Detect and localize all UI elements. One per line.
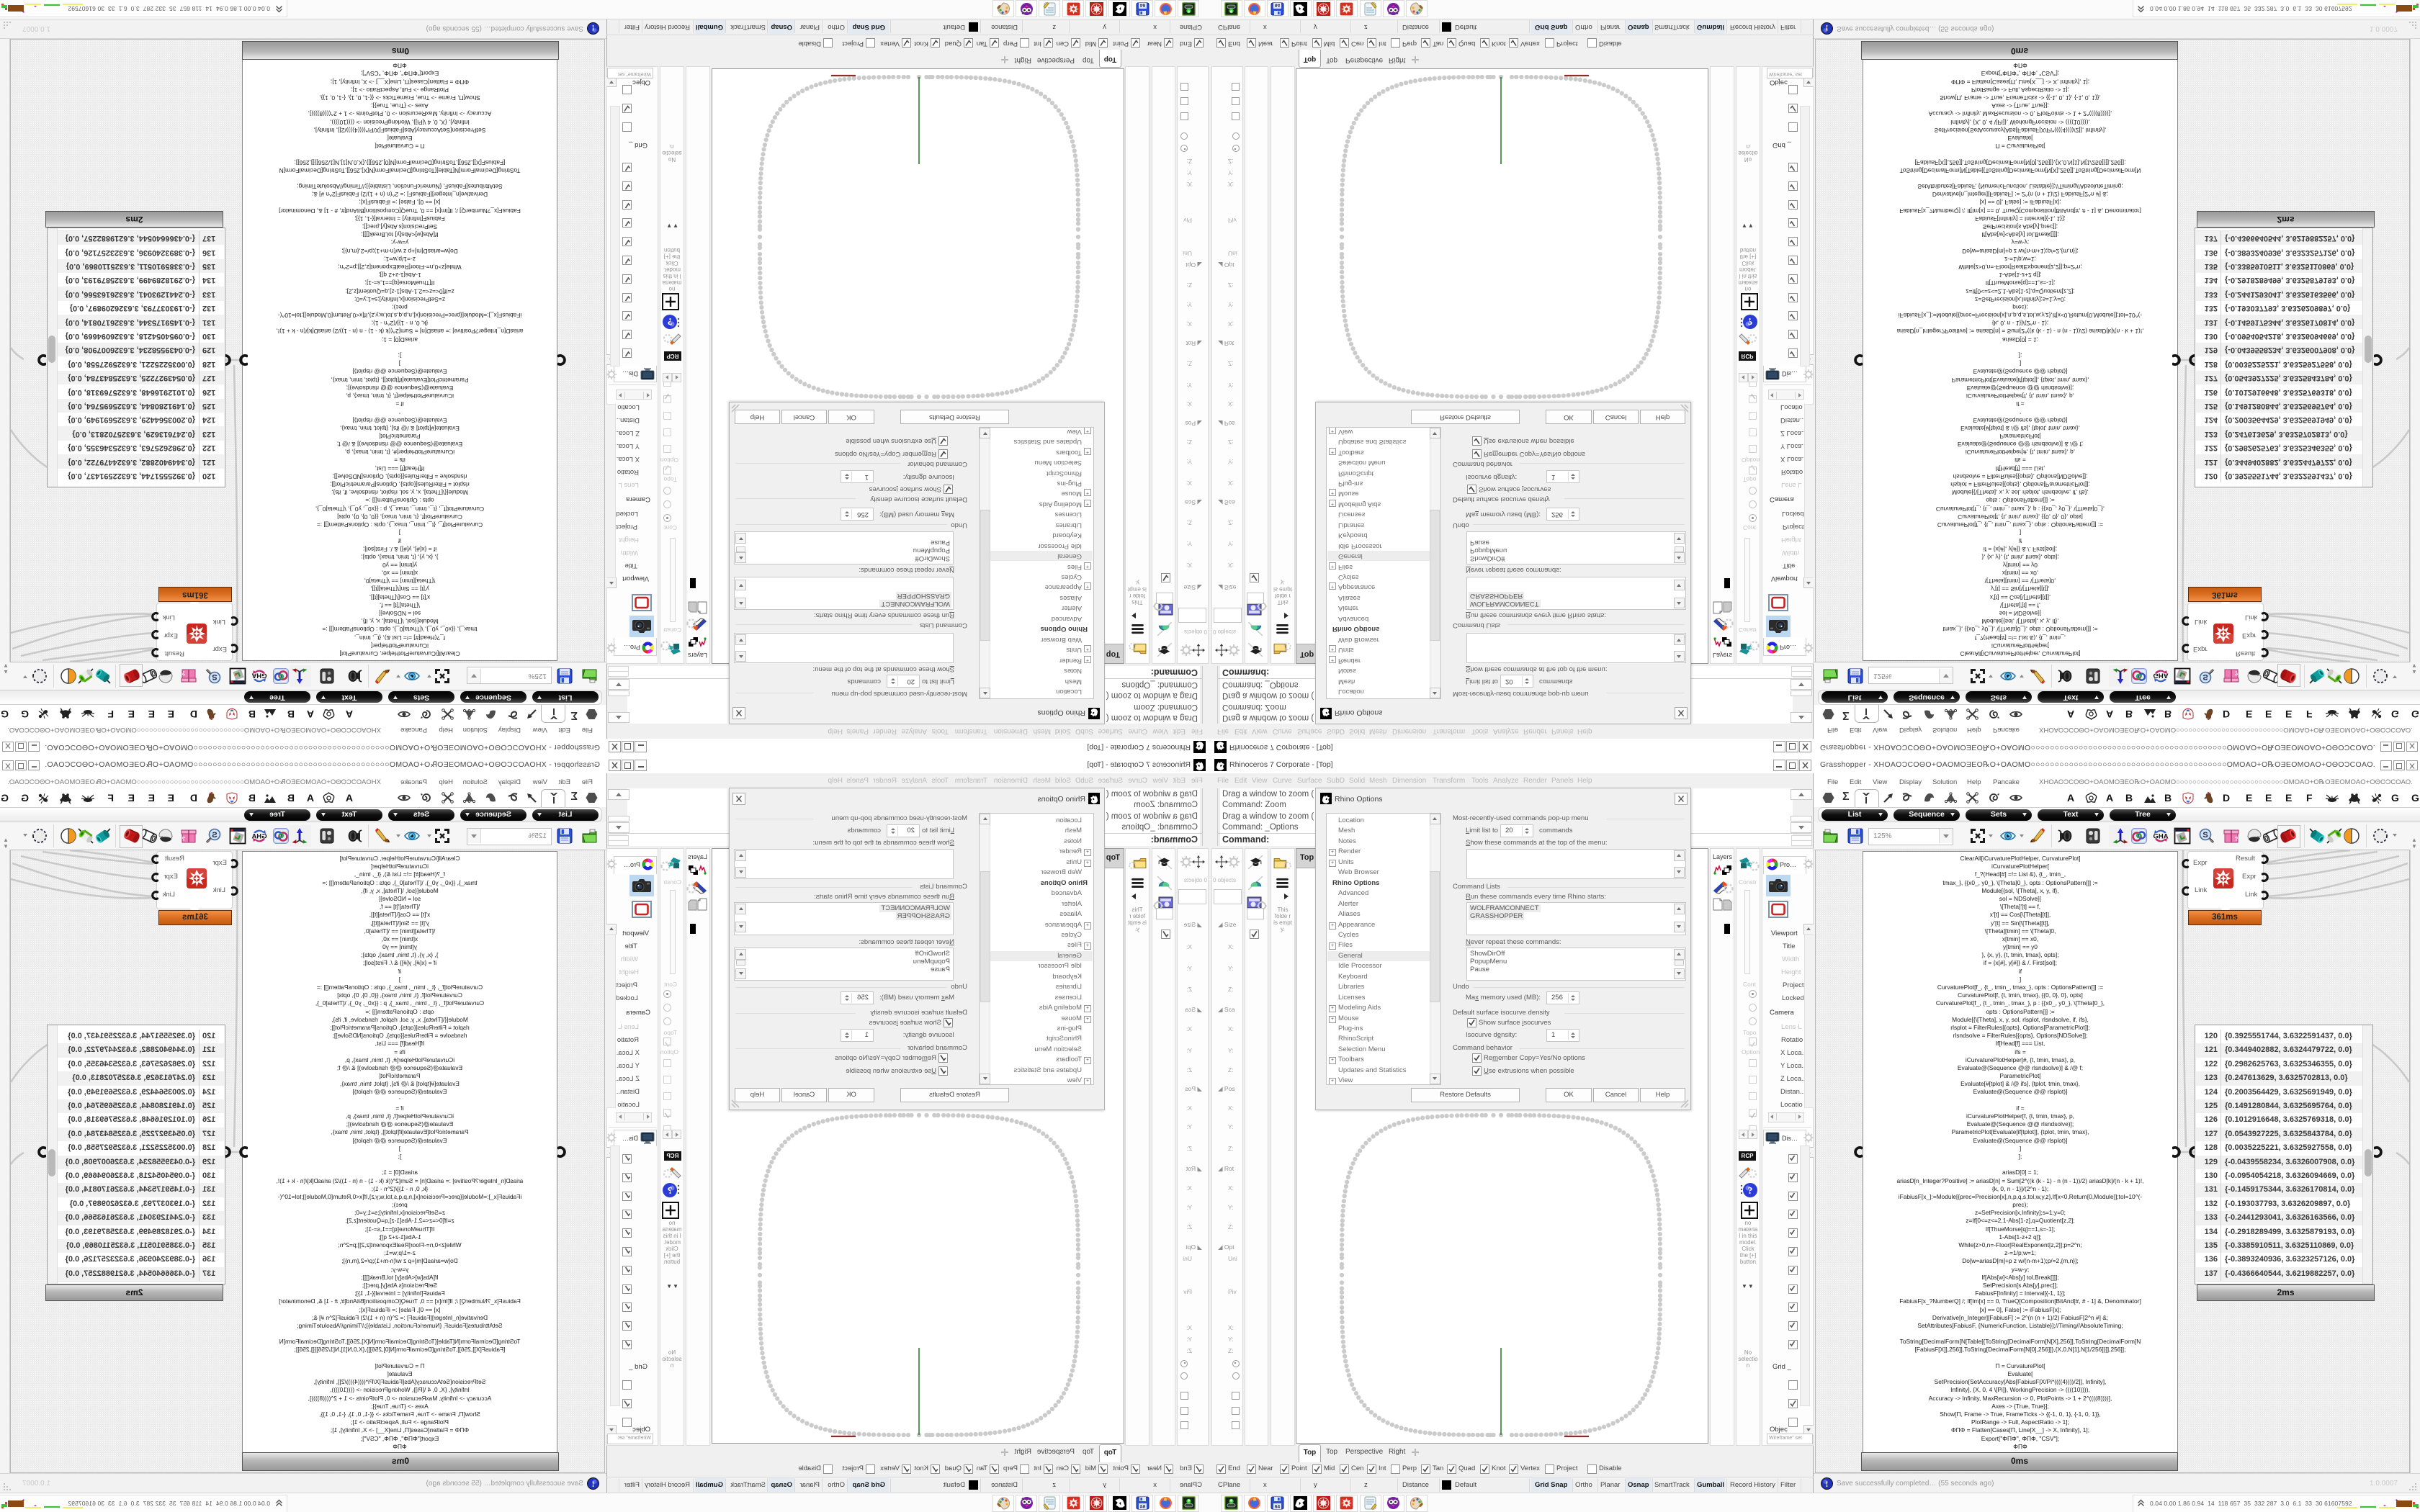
svg-text:64: 64 — [1275, 3, 1281, 8]
svg-text:?: ? — [2235, 836, 2238, 842]
svg-text:S: S — [2202, 672, 2208, 681]
svg-text:?: ? — [1748, 1186, 1753, 1197]
svg-text:?: ? — [182, 836, 186, 842]
svg-text:S: S — [2202, 831, 2208, 840]
svg-text:!: ! — [592, 23, 595, 33]
svg-text:?: ? — [2235, 670, 2238, 676]
svg-text:64: 64 — [1140, 3, 1146, 8]
svg-text:?: ? — [668, 315, 673, 326]
svg-text:64: 64 — [1275, 1505, 1281, 1510]
svg-text:?: ? — [1748, 315, 1753, 326]
svg-text:!: ! — [1826, 23, 1829, 33]
svg-text:S: S — [212, 672, 217, 681]
svg-text:S: S — [212, 831, 217, 840]
svg-text:64: 64 — [1140, 1505, 1146, 1510]
svg-text:?: ? — [668, 1186, 673, 1197]
svg-text:!: ! — [1826, 1479, 1829, 1489]
svg-text:!: ! — [592, 1479, 595, 1489]
svg-text:?: ? — [182, 670, 186, 676]
